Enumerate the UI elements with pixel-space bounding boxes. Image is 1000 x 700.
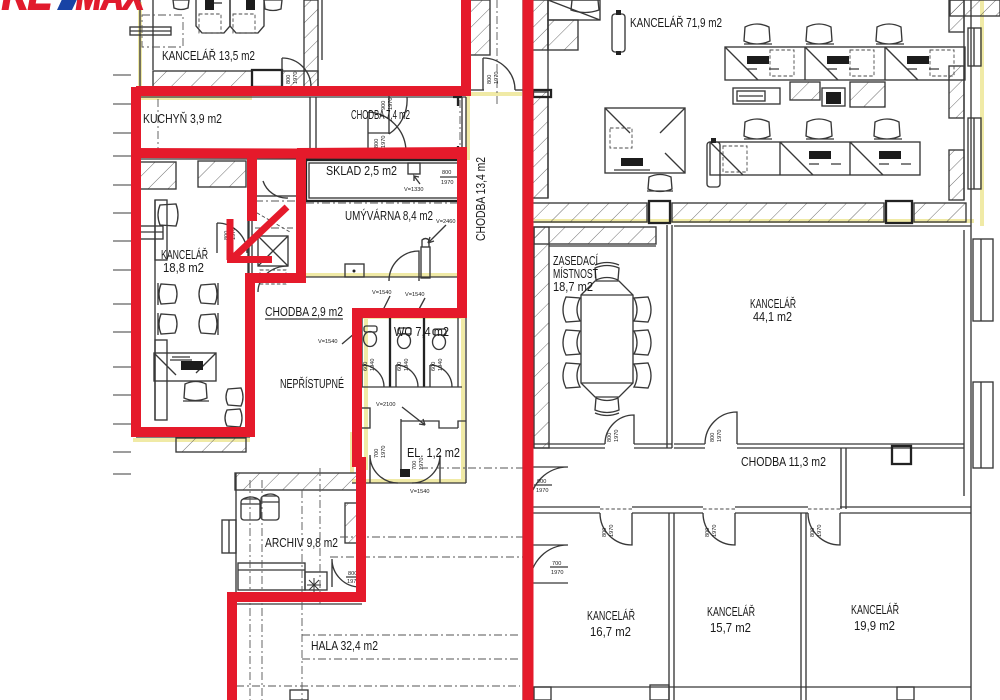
- svg-text:19,9 m2: 19,9 m2: [854, 619, 895, 633]
- svg-text:800: 800: [602, 528, 608, 537]
- svg-text:600: 600: [397, 362, 403, 371]
- svg-text:1970: 1970: [381, 136, 387, 148]
- svg-text:600: 600: [431, 362, 437, 371]
- svg-text:1970: 1970: [609, 525, 615, 537]
- svg-text:ARCHIV 9,8 m2: ARCHIV 9,8 m2: [265, 536, 338, 550]
- svg-text:KANCELÁŘ: KANCELÁŘ: [587, 608, 635, 623]
- svg-text:16,7 m2: 16,7 m2: [590, 625, 631, 639]
- svg-text:UMÝVÁRNA 8,4 m2: UMÝVÁRNA 8,4 m2: [345, 208, 433, 223]
- svg-text:ZASEDACÍ: ZASEDACÍ: [553, 253, 598, 268]
- svg-text:1940: 1940: [404, 359, 410, 371]
- svg-text:1970: 1970: [536, 488, 548, 494]
- svg-text:KANCELÁŘ 13,5 m2: KANCELÁŘ 13,5 m2: [162, 48, 255, 63]
- svg-text:15,7 m2: 15,7 m2: [710, 621, 751, 635]
- svg-text:800: 800: [442, 170, 451, 176]
- svg-text:V=1540: V=1540: [410, 489, 429, 495]
- svg-text:1970: 1970: [381, 446, 387, 458]
- svg-text:800: 800: [607, 433, 613, 442]
- svg-text:700: 700: [552, 561, 561, 567]
- svg-text:EL. 1,2 m2: EL. 1,2 m2: [407, 446, 460, 460]
- svg-text:1940: 1940: [438, 359, 444, 371]
- svg-text:V=1540: V=1540: [405, 292, 424, 298]
- svg-text:V=1330: V=1330: [404, 187, 423, 193]
- svg-text:KANCELÁŘ: KANCELÁŘ: [707, 604, 755, 619]
- svg-text:V=1540: V=1540: [372, 290, 391, 296]
- svg-text:1970: 1970: [817, 525, 823, 537]
- svg-text:1970: 1970: [551, 570, 563, 576]
- svg-text:MAX: MAX: [76, 0, 146, 18]
- svg-text:800: 800: [374, 139, 380, 148]
- svg-text:RE: RE: [2, 0, 53, 18]
- svg-text:800: 800: [710, 433, 716, 442]
- svg-text:18,7 m2: 18,7 m2: [553, 280, 593, 294]
- svg-text:CHODBA 11,3 m2: CHODBA 11,3 m2: [741, 455, 826, 469]
- svg-text:1970: 1970: [293, 72, 299, 84]
- svg-text:KANCELÁŘ 71,9 m2: KANCELÁŘ 71,9 m2: [630, 15, 722, 30]
- svg-text:800: 800: [348, 571, 357, 577]
- svg-text:600: 600: [363, 362, 369, 371]
- svg-text:HALA 32,4 m2: HALA 32,4 m2: [311, 639, 378, 653]
- svg-text:18,8 m2: 18,8 m2: [163, 261, 204, 275]
- svg-text:800: 800: [810, 528, 816, 537]
- svg-text:800: 800: [705, 528, 711, 537]
- svg-text:1970: 1970: [712, 525, 718, 537]
- svg-text:V=2460: V=2460: [436, 219, 455, 225]
- svg-text:800: 800: [286, 75, 292, 84]
- svg-text:1940: 1940: [370, 359, 376, 371]
- svg-text:700: 700: [374, 449, 380, 458]
- svg-text:1970: 1970: [717, 430, 723, 442]
- svg-text:900: 900: [537, 479, 546, 485]
- svg-text:1970: 1970: [388, 98, 394, 110]
- svg-text:SKLAD 2,5 m2: SKLAD 2,5 m2: [326, 164, 397, 178]
- svg-text:KUCHYŇ 3,9 m2: KUCHYŇ 3,9 m2: [143, 111, 222, 126]
- svg-text:KANCELÁŘ: KANCELÁŘ: [161, 247, 208, 262]
- svg-text:V=1540: V=1540: [318, 339, 337, 345]
- svg-text:WC 7,4 m2: WC 7,4 m2: [394, 325, 449, 339]
- svg-text:NEPŘÍSTUPNÉ: NEPŘÍSTUPNÉ: [280, 376, 344, 391]
- svg-text:KANCELÁŘ: KANCELÁŘ: [750, 296, 796, 311]
- svg-text:CHODBA 2,9 m2: CHODBA 2,9 m2: [265, 305, 343, 319]
- svg-text:800: 800: [487, 75, 493, 84]
- svg-text:V=2100: V=2100: [376, 402, 395, 408]
- svg-text:44,1 m2: 44,1 m2: [753, 310, 792, 324]
- svg-text:1970: 1970: [441, 180, 453, 186]
- svg-text:700: 700: [412, 461, 418, 470]
- svg-text:KANCELÁŘ: KANCELÁŘ: [851, 602, 899, 617]
- svg-text:1970: 1970: [614, 430, 620, 442]
- svg-text:900: 900: [381, 101, 387, 110]
- svg-text:MÍSTNOST: MÍSTNOST: [553, 266, 598, 281]
- svg-text:CHODBA 13,4 m2: CHODBA 13,4 m2: [474, 157, 488, 241]
